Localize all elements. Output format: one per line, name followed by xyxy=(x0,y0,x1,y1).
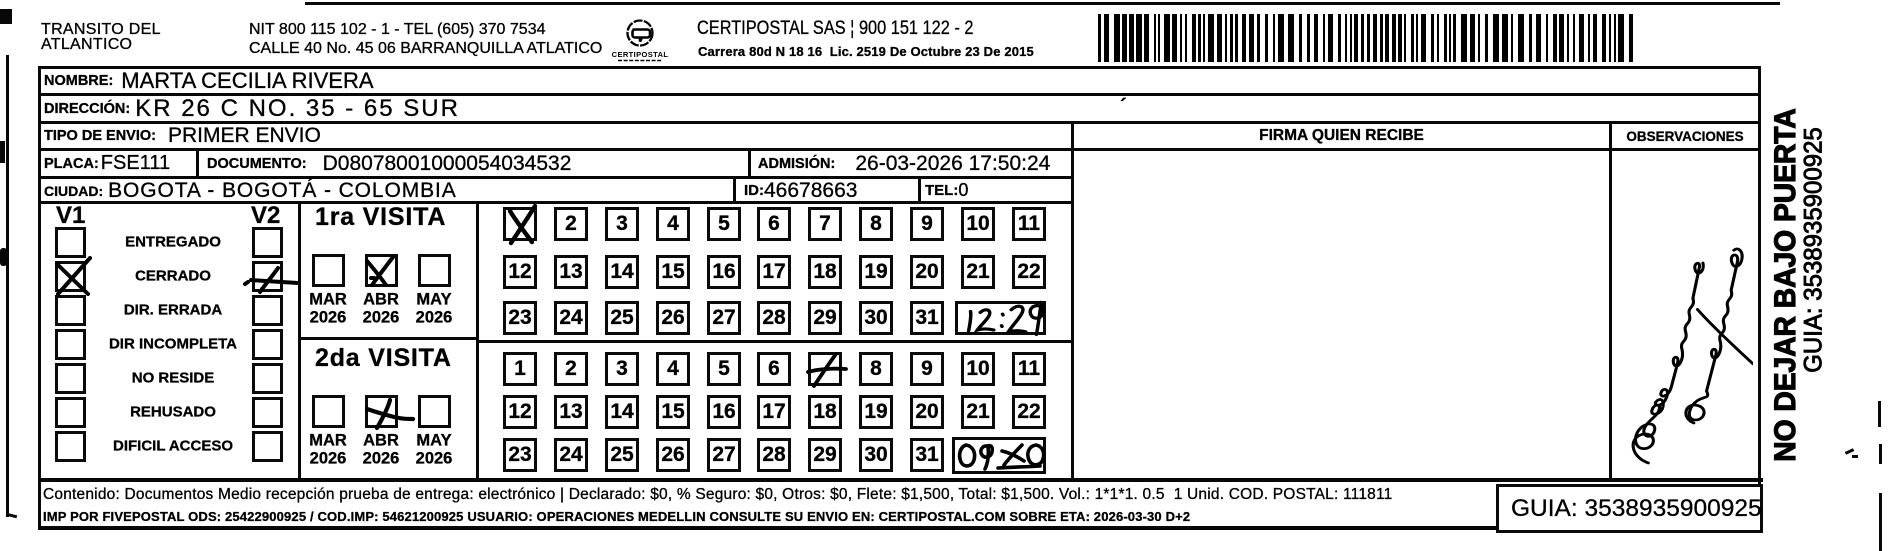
svg-text:CERTIPOSTAL: CERTIPOSTAL xyxy=(612,50,668,59)
